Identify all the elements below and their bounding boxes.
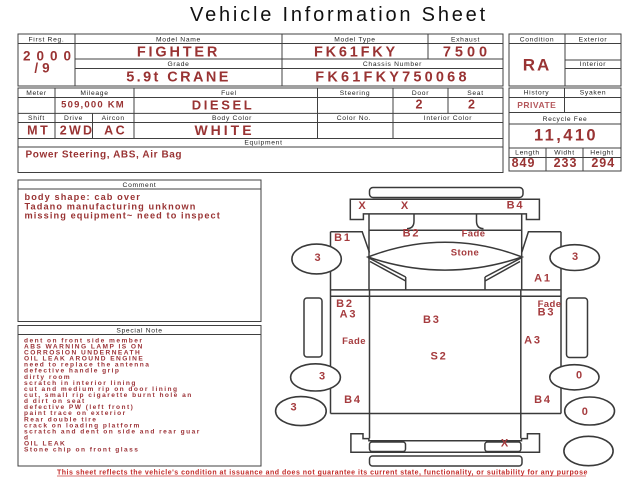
svg-text:233: 233	[554, 156, 578, 170]
svg-text:B3: B3	[423, 314, 441, 326]
svg-text:Syaken: Syaken	[580, 90, 607, 97]
svg-text:DIESEL: DIESEL	[192, 97, 255, 112]
svg-text:5.9t CRANE: 5.9t CRANE	[126, 70, 231, 86]
svg-text:MT: MT	[27, 124, 50, 138]
svg-text:Interior: Interior	[580, 61, 606, 68]
svg-text:2: 2	[416, 97, 423, 111]
svg-text:Exterior: Exterior	[579, 36, 608, 43]
svg-text:Drive: Drive	[64, 115, 83, 122]
svg-text:294: 294	[591, 156, 615, 170]
svg-text:Recycle Fee: Recycle Fee	[543, 116, 588, 123]
svg-text:FK61FKY: FK61FKY	[314, 44, 398, 60]
svg-text:Stone: Stone	[451, 247, 479, 258]
svg-text:/9: /9	[34, 61, 53, 76]
svg-text:FIGHTER: FIGHTER	[137, 44, 220, 60]
svg-text:X: X	[358, 200, 367, 212]
svg-text:B1: B1	[334, 232, 352, 244]
svg-text:FK61FKY750068: FK61FKY750068	[315, 70, 469, 86]
svg-text:2WD: 2WD	[60, 124, 94, 138]
svg-text:X: X	[401, 200, 410, 212]
svg-text:Exhaust: Exhaust	[451, 36, 480, 43]
svg-text:scratch and dent on side and r: scratch and dent on side and rear guar	[24, 428, 201, 435]
svg-text:First Reg.: First Reg.	[29, 36, 65, 43]
svg-text:11,410: 11,410	[534, 127, 598, 145]
svg-text:Mileage: Mileage	[80, 90, 108, 97]
svg-text:Equipment: Equipment	[244, 140, 282, 147]
svg-text:History: History	[524, 90, 550, 97]
svg-text:B4: B4	[507, 200, 525, 212]
svg-text:RA: RA	[523, 56, 552, 75]
svg-text:X: X	[501, 438, 510, 450]
svg-text:Meter: Meter	[26, 90, 47, 97]
svg-text:0: 0	[576, 370, 584, 382]
svg-text:A3: A3	[524, 335, 542, 347]
svg-text:B4: B4	[344, 394, 362, 406]
svg-text:AC: AC	[104, 124, 127, 138]
svg-text:Aircon: Aircon	[102, 115, 125, 122]
svg-text:3: 3	[319, 371, 327, 383]
svg-text:0: 0	[582, 406, 590, 418]
svg-text:A1: A1	[534, 273, 552, 285]
svg-text:This sheet reflects the vehicl: This sheet reflects the vehicle's condit…	[57, 470, 588, 477]
svg-text:B4: B4	[534, 394, 552, 406]
svg-text:S2: S2	[430, 350, 447, 362]
svg-text:B3: B3	[538, 307, 556, 319]
svg-text:Interior Color: Interior Color	[424, 115, 473, 122]
svg-text:Comment: Comment	[123, 182, 157, 189]
svg-text:509,000 KM: 509,000 KM	[61, 100, 125, 111]
svg-text:Condition: Condition	[520, 36, 555, 43]
svg-text:A3: A3	[340, 309, 358, 321]
svg-text:Door: Door	[412, 90, 429, 97]
svg-text:Fuel: Fuel	[221, 90, 237, 97]
svg-text:Seat: Seat	[467, 90, 484, 97]
svg-text:849: 849	[512, 156, 536, 170]
svg-text:B2: B2	[403, 227, 421, 239]
svg-text:Fade: Fade	[462, 228, 486, 239]
svg-text:Shift: Shift	[28, 115, 45, 122]
svg-text:7500: 7500	[443, 44, 491, 60]
svg-text:Steering: Steering	[340, 90, 371, 97]
svg-text:Model Name: Model Name	[156, 36, 201, 43]
svg-text:2: 2	[468, 97, 475, 111]
svg-text:3: 3	[291, 402, 299, 414]
svg-text:Fade: Fade	[342, 336, 366, 347]
svg-text:Grade: Grade	[167, 61, 189, 68]
svg-text:Special Note: Special Note	[116, 327, 162, 334]
svg-text:Model Type: Model Type	[334, 36, 375, 43]
svg-text:3: 3	[315, 252, 323, 264]
svg-text:Chassis Number: Chassis Number	[363, 61, 422, 68]
svg-text:WHITE: WHITE	[194, 122, 254, 138]
svg-text:missing equipment~ need to ins: missing equipment~ need to inspect	[25, 211, 221, 221]
svg-text:PRIVATE: PRIVATE	[517, 100, 556, 110]
svg-text:Power Steering, ABS, Air Bag: Power Steering, ABS, Air Bag	[26, 150, 183, 161]
svg-text:Vehicle Information Sheet: Vehicle Information Sheet	[190, 4, 488, 26]
svg-text:3: 3	[572, 251, 580, 263]
svg-text:Color No.: Color No.	[337, 115, 372, 122]
svg-text:Stone chip on front glass: Stone chip on front glass	[24, 447, 139, 454]
